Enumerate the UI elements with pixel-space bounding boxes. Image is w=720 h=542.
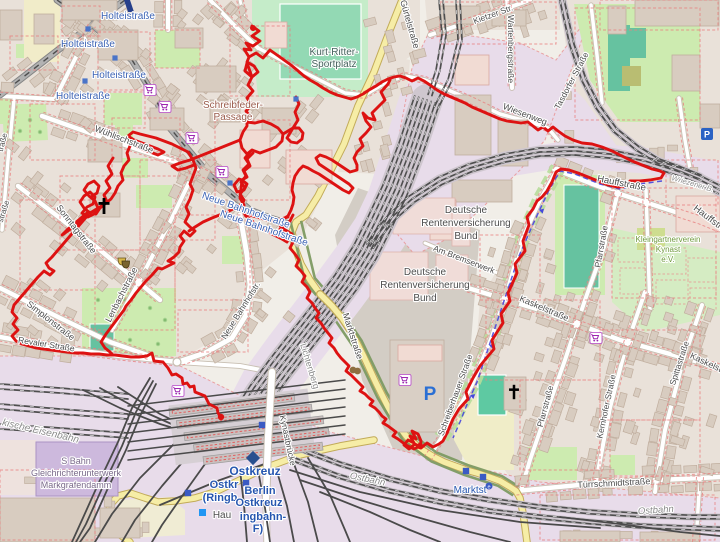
svg-text:F): F) [253, 523, 264, 535]
svg-text:Kynast: Kynast [656, 245, 681, 254]
svg-text:Bund: Bund [413, 293, 436, 304]
svg-text:Holteistraße: Holteistraße [56, 91, 110, 102]
svg-text:Sportplatz: Sportplatz [311, 59, 356, 70]
svg-text:(Ringb: (Ringb [203, 492, 238, 504]
svg-text:Ostkreuz: Ostkreuz [235, 497, 283, 509]
svg-text:Marktst: Marktst [454, 485, 487, 496]
svg-text:Ostkr: Ostkr [210, 479, 239, 491]
svg-text:Schreibfeder-: Schreibfeder- [203, 100, 263, 111]
svg-text:Rentenversicherung: Rentenversicherung [421, 218, 511, 229]
svg-text:ingbahn-: ingbahn- [240, 511, 287, 523]
svg-text:Holteistraße: Holteistraße [92, 70, 146, 81]
svg-text:Berlin: Berlin [244, 485, 275, 497]
svg-text:Holteistraße: Holteistraße [101, 11, 155, 22]
svg-text:P: P [704, 130, 710, 140]
svg-text:Wartenbergstraße: Wartenbergstraße [506, 15, 516, 83]
svg-text:Markgrafendamm: Markgrafendamm [41, 480, 112, 490]
svg-text:e.V.: e.V. [661, 255, 675, 264]
svg-text:Kleingartnerverein: Kleingartnerverein [636, 235, 701, 244]
svg-text:Passage: Passage [214, 112, 253, 123]
svg-text:Kurt-Ritter-: Kurt-Ritter- [310, 47, 359, 58]
svg-text:Gleichrichterunterwerk: Gleichrichterunterwerk [31, 468, 122, 478]
svg-text:P: P [424, 384, 437, 405]
svg-text:Rentenversicherung: Rentenversicherung [380, 280, 470, 291]
svg-text:Hau: Hau [213, 510, 231, 521]
svg-text:Deutsche: Deutsche [404, 267, 447, 278]
svg-text:e: e [487, 485, 490, 491]
svg-text:Deutsche: Deutsche [445, 205, 488, 216]
svg-text:Ostkreuz: Ostkreuz [229, 464, 280, 478]
svg-text:Holteistraße: Holteistraße [61, 39, 115, 50]
svg-text:S Bahn: S Bahn [61, 456, 91, 466]
svg-text:Bund: Bund [454, 231, 477, 242]
